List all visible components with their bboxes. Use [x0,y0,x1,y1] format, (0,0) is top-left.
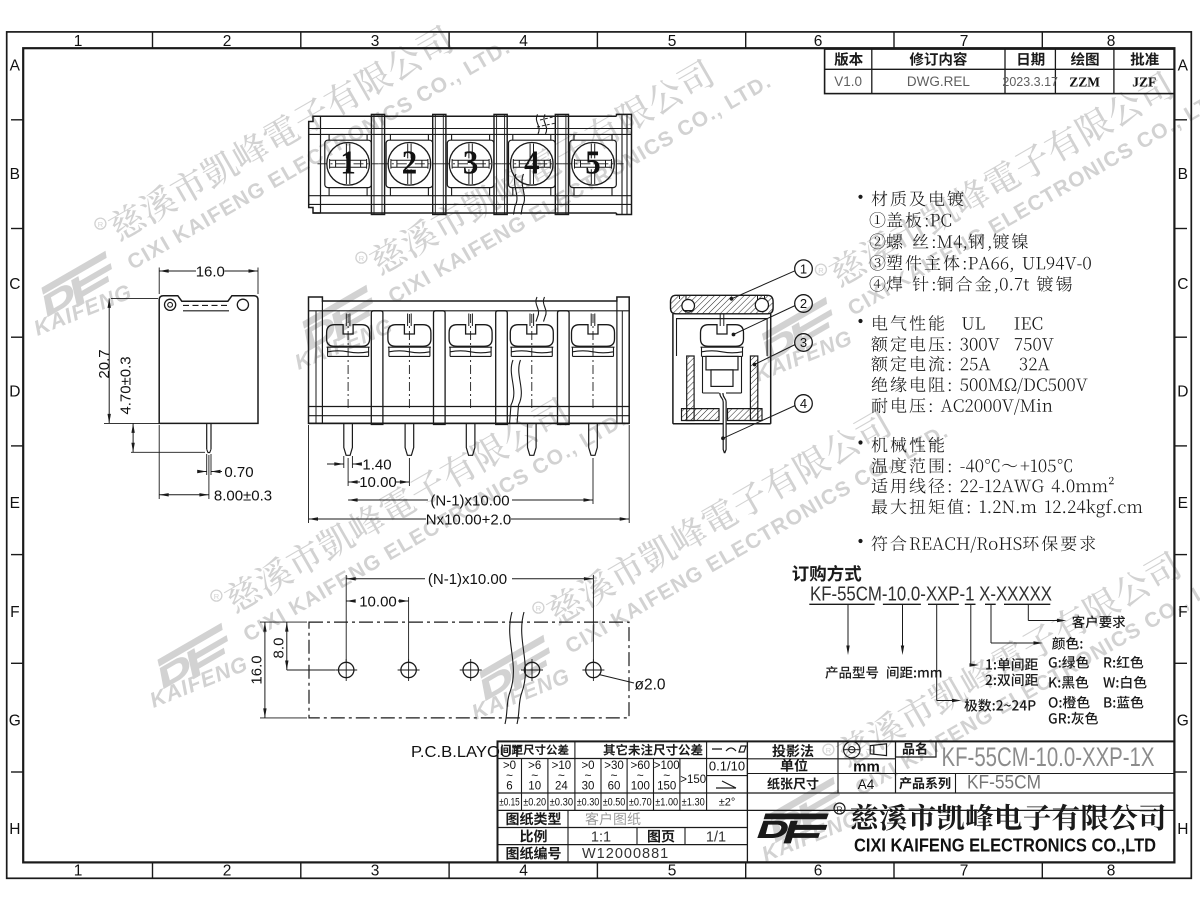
svg-text:CIXI KAIFENG ELECTRONICS CO.,L: CIXI KAIFENG ELECTRONICS CO.,LTD [854,835,1156,856]
svg-text:10: 10 [528,781,541,793]
svg-text:2023.3.17: 2023.3.17 [1002,75,1058,89]
svg-text:DWG.REL: DWG.REL [907,74,970,89]
svg-text:16.0: 16.0 [196,263,225,280]
svg-text:2: 2 [223,863,232,880]
svg-text:150: 150 [657,781,676,793]
svg-text:>150: >150 [680,774,706,786]
svg-text:8.00±0.3: 8.00±0.3 [214,487,272,504]
svg-text:10.00: 10.00 [359,594,397,611]
svg-text:D: D [9,384,20,401]
svg-text:A4: A4 [858,777,875,792]
svg-text:2: 2 [402,143,417,180]
svg-text:±2°: ±2° [719,797,736,809]
svg-text:F: F [10,604,19,621]
svg-text:E: E [1178,495,1188,512]
svg-text:8: 8 [1107,863,1116,880]
svg-text:3: 3 [800,335,807,350]
svg-text:KF-55CM-10.0-XXP-1X: KF-55CM-10.0-XXP-1X [942,742,1155,772]
svg-text:(N-1)x10.00: (N-1)x10.00 [428,571,507,588]
svg-text:±0.15: ±0.15 [499,797,520,809]
svg-text:B: B [1178,166,1188,183]
svg-text:ZZM: ZZM [1069,75,1100,90]
svg-text:±1.30: ±1.30 [682,797,705,809]
svg-text:F: F [1178,604,1187,621]
svg-text:H: H [1177,821,1188,838]
svg-text:3: 3 [371,863,380,880]
svg-text:B: B [10,166,20,183]
svg-text:0.1/10: 0.1/10 [709,759,745,774]
svg-text:1: 1 [74,33,83,50]
svg-text:60: 60 [608,781,621,793]
svg-text:3: 3 [463,143,478,180]
svg-text:±0.30: ±0.30 [577,797,600,809]
svg-text:4: 4 [524,143,539,180]
svg-text:4.70±0.3: 4.70±0.3 [118,356,135,414]
svg-text:4: 4 [519,863,528,880]
svg-text:5: 5 [668,863,677,880]
svg-text:1.40: 1.40 [362,457,391,474]
svg-text:4: 4 [800,396,807,411]
svg-text:8.0: 8.0 [271,638,288,659]
svg-text:20.7: 20.7 [96,349,113,378]
svg-text:G: G [1177,713,1189,730]
svg-text:JZF: JZF [1132,75,1156,90]
svg-text:W12000881: W12000881 [582,846,669,862]
svg-text:Nx10.00+2.0: Nx10.00+2.0 [426,511,511,528]
svg-text:24: 24 [555,781,568,793]
svg-text:KF-55CM: KF-55CM [967,773,1041,794]
svg-text:±0.50: ±0.50 [603,797,626,809]
svg-text:1: 1 [800,261,807,276]
svg-text:6: 6 [814,863,823,880]
svg-text:3: 3 [371,33,380,50]
svg-text:8: 8 [1107,33,1116,50]
svg-text:1: 1 [340,143,355,180]
svg-text:D: D [1177,384,1188,401]
svg-text:KF-55CM-10.0-XXP-1 X-XXXXX: KF-55CM-10.0-XXP-1 X-XXXXX [810,583,1052,606]
svg-text:C: C [9,276,20,293]
svg-text:C: C [1177,276,1188,293]
svg-text:1:1: 1:1 [591,829,611,845]
svg-text:±0.20: ±0.20 [523,797,546,809]
svg-text:(N-1)x10.00: (N-1)x10.00 [430,492,509,509]
svg-text:H: H [9,821,20,838]
svg-text:100: 100 [631,781,650,793]
svg-text:2: 2 [223,33,232,50]
svg-text:30: 30 [582,781,595,793]
svg-text:1: 1 [74,863,83,880]
svg-text:16.0: 16.0 [249,655,266,684]
svg-text:7: 7 [960,33,969,50]
svg-text:A: A [1178,58,1189,75]
svg-text:1/1: 1/1 [706,829,726,845]
svg-text:mm: mm [853,759,880,776]
svg-text:0.70: 0.70 [224,464,253,481]
svg-text:R: R [837,805,843,814]
svg-text:±0.30: ±0.30 [550,797,574,809]
svg-text:V1.0: V1.0 [834,74,862,89]
svg-text:2: 2 [800,296,807,311]
svg-text:6: 6 [506,781,512,793]
svg-text:ø2.0: ø2.0 [635,677,666,694]
svg-text:5: 5 [585,143,600,180]
svg-text:±1.00: ±1.00 [655,797,678,809]
svg-text:10.00: 10.00 [359,474,397,491]
svg-text:7: 7 [960,863,969,880]
svg-text:±0.70: ±0.70 [629,797,652,809]
svg-text:G: G [9,713,21,730]
svg-text:E: E [10,495,20,512]
svg-text:4: 4 [519,33,528,50]
svg-text:A: A [10,58,21,75]
svg-text:6: 6 [814,33,823,50]
svg-text:5: 5 [668,33,677,50]
